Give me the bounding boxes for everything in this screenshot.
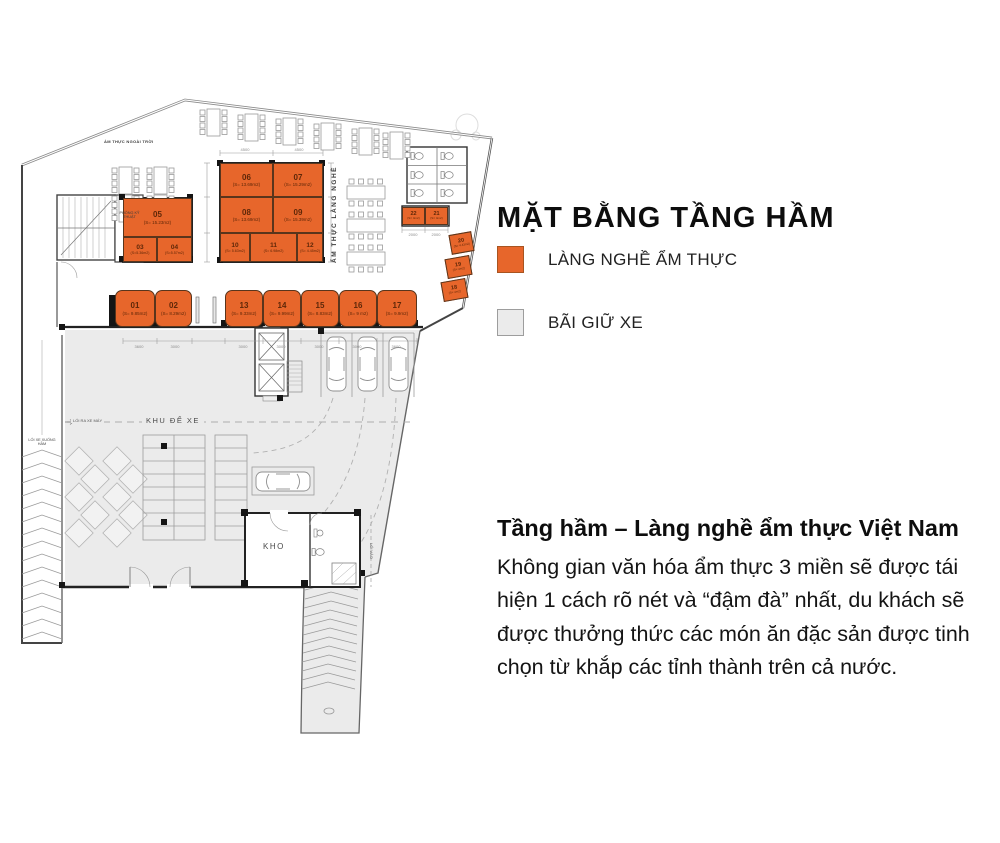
svg-text:4500: 4500 (241, 147, 251, 152)
left-ramp (22, 340, 62, 639)
unit-15: 15(S= 8.83m2) (301, 290, 339, 327)
unit-03: 03(S=5.36m2) (123, 237, 157, 262)
unit-22: 22(S= 4m2) (402, 207, 425, 225)
entrance-label: LỐI VÀO (369, 543, 374, 573)
unit-19: 19(S= 4m2) (444, 255, 472, 279)
page: 4500 4500 3600 3000 3000 3000 3000 3000 … (0, 0, 1000, 843)
svg-text:3000: 3000 (315, 344, 325, 349)
svg-text:3600: 3600 (135, 344, 145, 349)
description-body: Không gian văn hóa ẩm thực 3 miền sẽ đượ… (497, 551, 971, 684)
unit-02: 02(S= 8.29m2) (155, 290, 192, 327)
unit-06: 06(S= 13.69m2) (220, 163, 273, 197)
description-block: Tầng hầm – Làng nghề ẩm thực Việt Nam Kh… (497, 511, 971, 684)
legend-item-craft-village: LÀNG NGHỀ ẨM THỰC (497, 246, 737, 273)
page-title: MẶT BẰNG TẦNG HẦM (497, 202, 835, 235)
unit-21: 21(S= 4m2) (425, 207, 448, 225)
corridor-doors (196, 297, 216, 323)
unit-17: 17(S= 9.9m2) (377, 290, 417, 327)
unit-13: 13(S= 9.33m2) (225, 290, 263, 327)
unit-04: 04(S=5.57m2) (157, 237, 192, 262)
unit-07: 07(S= 15.29m2) (273, 163, 323, 197)
craft-dining-label: ẨM THỰC LÀNG NGHỀ (331, 177, 338, 263)
unit-20: 20(S= 4.43m2) (448, 231, 474, 255)
parking-zone-label: KHU ĐỂ XE (142, 416, 204, 425)
svg-text:3000: 3000 (353, 344, 363, 349)
legend-swatch-orange (497, 246, 524, 273)
unit-01: 01(S= 9.85m2) (115, 290, 155, 327)
legend-item-parking: BÃI GIỮ XE (497, 309, 643, 336)
unit-08: 08(S= 13.69m2) (220, 197, 273, 233)
storage-label: KHO (263, 542, 285, 551)
restrooms (407, 147, 467, 203)
technical-room-label: PHÒNG KỸ THUẬT (116, 211, 143, 219)
svg-text:2000: 2000 (409, 232, 419, 237)
outdoor-dining-label: ẨM THỰC NGOÀI TRỜI (104, 139, 153, 144)
legend-label: BÃI GIỮ XE (548, 313, 643, 333)
svg-text:3000: 3000 (171, 344, 181, 349)
unit-12: 12(S= 4.45m2) (297, 233, 323, 262)
legend-swatch-gray (497, 309, 524, 336)
legend-label: LÀNG NGHỀ ẨM THỰC (548, 250, 737, 270)
unit-10: 10(S= 5.63m2) (220, 233, 250, 262)
motorbike-exit-label: LỐI RA XE MÁY (71, 418, 104, 423)
svg-text:3600: 3600 (392, 344, 402, 349)
svg-text:3000: 3000 (277, 344, 287, 349)
floor-plan: 4500 4500 3600 3000 3000 3000 3000 3000 … (15, 95, 505, 745)
unit-16: 16(S= 9 m2) (339, 290, 377, 327)
unit-18: 18(S= 4m2) (440, 278, 468, 302)
unit-09: 09(S= 15.39m2) (273, 197, 323, 233)
car-ramp-label: LỐI XE XUỐNG HẦM (25, 438, 59, 446)
svg-text:2000: 2000 (432, 232, 442, 237)
svg-text:3000: 3000 (239, 344, 249, 349)
stairwell (57, 195, 115, 278)
unit-11: 11(S= 6.98m2) (250, 233, 297, 262)
svg-text:4500: 4500 (295, 147, 305, 152)
unit-14: 14(S= 9.99m2) (263, 290, 301, 327)
description-heading: Tầng hầm – Làng nghề ẩm thực Việt Nam (497, 511, 971, 545)
